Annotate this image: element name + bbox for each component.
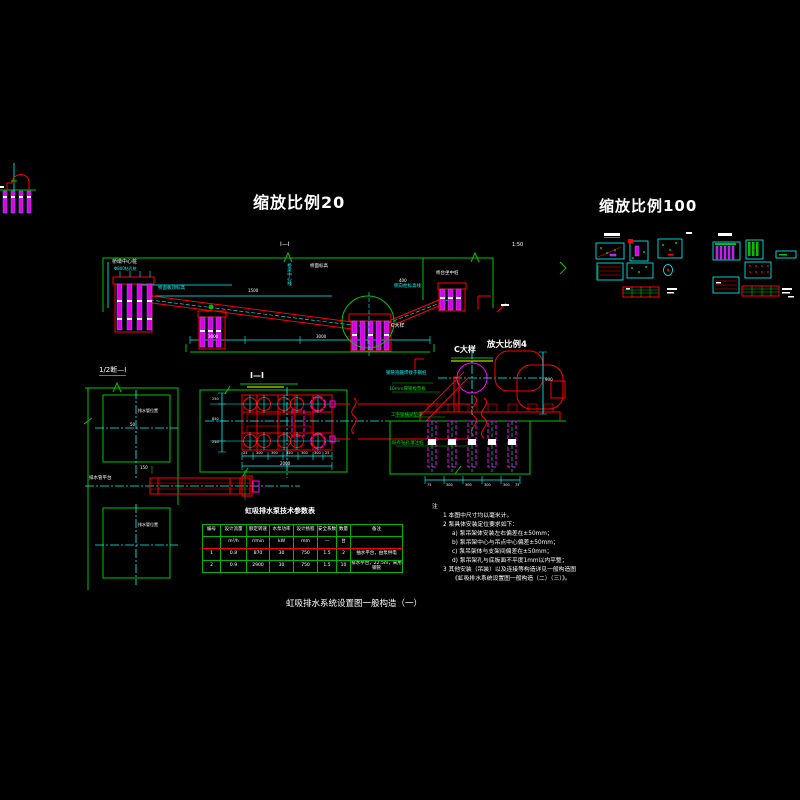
section-dim-150: 150 xyxy=(140,466,148,470)
plan-dim-b5: 300 xyxy=(301,452,308,456)
detail-leader-2: 10mm厚钢板垫板 xyxy=(389,388,426,393)
plan-dim-b4: 350 xyxy=(286,452,293,456)
label-left-pier: 桥墩中心桩 xyxy=(112,260,137,265)
plan-dim-total: 2000 xyxy=(280,462,290,466)
label-right-abutment: 桥台坐中桩 xyxy=(436,272,459,277)
table-units-row: m³/h r/minkW mm— 台 xyxy=(203,537,403,549)
edge-fragment-detail xyxy=(0,163,36,213)
plan-dim-b3: 300 xyxy=(271,452,278,456)
detail-dim-b5: 300 xyxy=(503,484,510,488)
title-detail-c: C大样 xyxy=(454,346,476,354)
section-cut-mark: Ⅰ—Ⅰ xyxy=(280,242,290,248)
detail-leader-1: 钢管抱箍焊接于钢桩 xyxy=(386,372,427,377)
mini-detail-sheets-left xyxy=(596,232,692,297)
label-bridge-centerline: 桥梁中心线 xyxy=(286,263,291,286)
section-inner-label-2: 排水管位置 xyxy=(138,523,158,527)
pump-parameter-table: 编号设计流量 额定转速水泵功率 设计扬程安全系数 数量备注 m³/h r/min… xyxy=(202,524,402,573)
dim-400: 400 xyxy=(399,279,407,283)
plan-dim-b6: 300 xyxy=(314,452,321,456)
notes-block: 注 1 本图中尺寸均以毫米计。 2 泵具体安装定位要求如下： a) 泵吊架体安装… xyxy=(432,503,576,584)
plan-dim-left-3: 250 xyxy=(212,441,219,445)
mini-detail-sheets-right xyxy=(713,233,796,298)
dim-1500: 1500 xyxy=(248,289,258,293)
note-line: 《虹吸排水系统设置图一般构造（二）（三）》。 xyxy=(452,575,576,584)
title-half-section: 1/2断—Ⅰ xyxy=(99,367,126,376)
plan-view xyxy=(200,384,497,478)
title-detail-scale: 放大比例4 xyxy=(487,341,527,350)
dim-3000-a: 3000 xyxy=(208,335,218,339)
cad-linework xyxy=(0,0,800,800)
label-side-level: 侧向栓标高线 xyxy=(394,285,421,290)
plan-dim-b7: 25 xyxy=(325,452,329,456)
cad-viewport: 缩放比例20 缩放比例100 Ⅰ—Ⅰ 1:50 桥墩中心桩 Φ800钻孔桩 桥面… xyxy=(0,0,800,800)
section-inner-label: 排水管位置 xyxy=(138,409,158,413)
detail-leader-4: 既有钻孔灌注桩 xyxy=(392,442,424,447)
label-deck: 桥面标高 xyxy=(310,265,328,270)
note-line: 1 本图中尺寸均以毫米计。 xyxy=(443,512,576,521)
detail-dim-b4: 300 xyxy=(484,484,491,488)
detail-dim-b3: 300 xyxy=(465,484,472,488)
note-line: c) 泵吊架体与支架间偏差在±50mm； xyxy=(452,548,576,557)
note-line: d) 泵吊架孔与底板面不平度1mm以内平整； xyxy=(452,557,576,566)
plan-dim-b1: 25 xyxy=(243,452,247,456)
table-row: 20.9 290030 7501.5 10排水平台，22.5m，采用钢管 xyxy=(203,561,403,573)
detail-dim-right: 900 xyxy=(545,378,553,382)
title-plan: Ⅰ—Ⅰ xyxy=(250,372,264,380)
detail-dim-b1: 75 xyxy=(427,484,431,488)
detail-leader-3: 工字钢横梁垫梁 xyxy=(391,414,423,419)
beam-label: 排水管平台 xyxy=(89,477,112,482)
detail-dim-b2: 300 xyxy=(446,484,453,488)
detail-dim-b6: 75 xyxy=(515,484,519,488)
ratio-label: 1:50 xyxy=(512,243,523,248)
note-line: b) 泵吊架中心与吊点中心偏差±50mm； xyxy=(452,539,576,548)
plan-dim-left-1: 250 xyxy=(212,398,219,402)
label-deck-level: 桥面板顶标高 xyxy=(158,287,185,292)
dim-3000-b: 3000 xyxy=(316,335,326,339)
plan-dim-b2: 300 xyxy=(256,452,263,456)
notes-header: 注 xyxy=(432,503,576,512)
drawing-caption: 虹吸排水系统设置图一般构造（一） xyxy=(286,600,422,609)
note-line: 2 泵具体安装定位要求如下： xyxy=(443,521,576,530)
note-line: a) 泵吊架体安装左右偏差在±50mm； xyxy=(452,530,576,539)
section-dim-50: 50 xyxy=(130,423,135,427)
table-title: 虹吸排水泵技术参数表 xyxy=(245,508,315,515)
title-scale-100: 缩放比例100 xyxy=(599,199,697,214)
label-detail-c-ref: C大样 xyxy=(391,324,405,329)
table-row: 10.8 87030 7501.5 2抽水平台，由泵供电 xyxy=(203,549,403,561)
table-header-row: 编号设计流量 额定转速水泵功率 设计扬程安全系数 数量备注 xyxy=(203,525,403,537)
label-left-pier-sub: Φ800钻孔桩 xyxy=(114,267,137,271)
title-scale-20: 缩放比例20 xyxy=(253,195,345,211)
note-line: 3 其他安装（吊装）以及连接等构造详见一般构造图 xyxy=(443,566,576,575)
plan-dim-left-2: 850 xyxy=(212,418,219,422)
